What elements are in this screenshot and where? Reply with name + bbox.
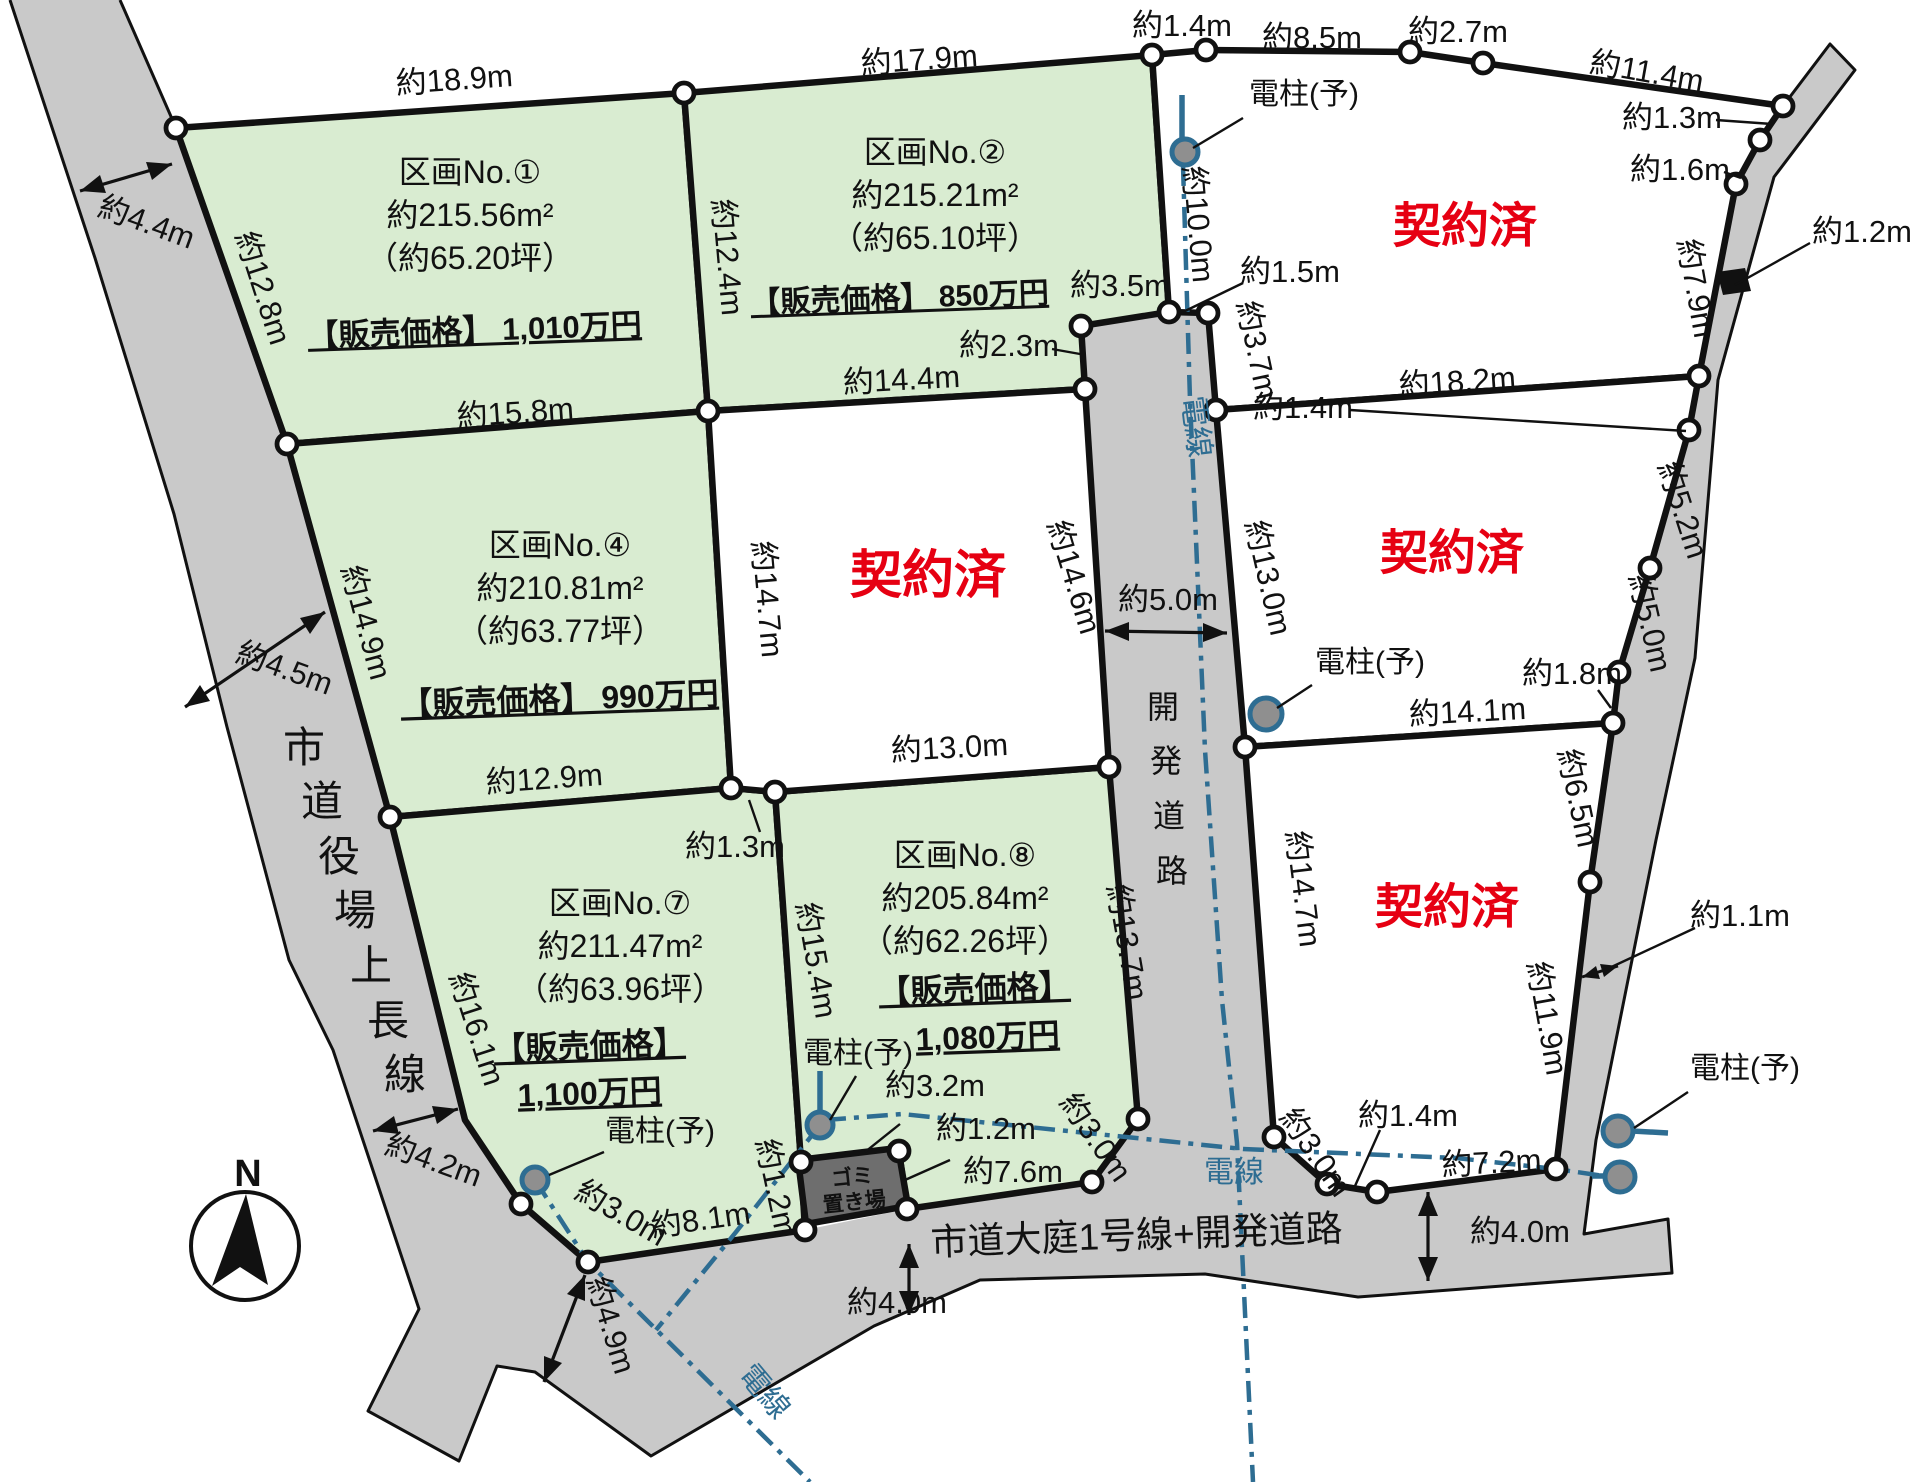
svg-text:約3.2m: 約3.2m: [885, 1068, 985, 1103]
svg-text:約1.2m: 約1.2m: [936, 1111, 1036, 1146]
svg-text:契約済: 契約済: [850, 547, 1007, 605]
svg-text:道: 道: [301, 778, 343, 825]
svg-text:（約62.26坪）: （約62.26坪）: [861, 923, 1069, 959]
svg-text:電柱(予): 電柱(予): [1249, 78, 1359, 111]
svg-text:約4.0m: 約4.0m: [1470, 1214, 1570, 1249]
svg-text:市: 市: [283, 724, 325, 771]
svg-text:開: 開: [1147, 689, 1179, 725]
svg-text:発: 発: [1150, 743, 1182, 779]
svg-text:約14.1m: 約14.1m: [1408, 691, 1527, 732]
svg-text:約1.8m: 約1.8m: [1522, 656, 1622, 691]
svg-text:約2.7m: 約2.7m: [1408, 14, 1508, 49]
svg-text:区画No.④: 区画No.④: [489, 527, 632, 563]
svg-text:約211.47m²: 約211.47m²: [538, 928, 703, 964]
svg-text:約4.0m: 約4.0m: [847, 1285, 947, 1320]
svg-text:（約63.77坪）: （約63.77坪）: [456, 613, 664, 649]
svg-text:約1.3m: 約1.3m: [1622, 100, 1722, 135]
svg-text:線: 線: [384, 1051, 426, 1098]
svg-text:約1.6m: 約1.6m: [1630, 152, 1730, 187]
svg-text:【販売価格】: 【販売価格】: [878, 968, 1071, 1011]
svg-text:約1.1m: 約1.1m: [1690, 898, 1790, 933]
svg-text:区画No.⑧: 区画No.⑧: [894, 837, 1037, 873]
svg-text:上: 上: [350, 942, 392, 989]
svg-text:電柱(予): 電柱(予): [803, 1037, 913, 1070]
svg-text:路: 路: [1156, 853, 1188, 889]
svg-text:約2.3m: 約2.3m: [959, 328, 1059, 363]
svg-text:区画No.②: 区画No.②: [864, 134, 1007, 170]
svg-text:区画No.①: 区画No.①: [399, 154, 542, 190]
svg-text:約215.56m²: 約215.56m²: [386, 197, 554, 233]
svg-text:電柱(予): 電柱(予): [605, 1115, 715, 1148]
svg-text:約1.4m: 約1.4m: [1132, 8, 1232, 43]
svg-text:N: N: [234, 1153, 261, 1195]
svg-text:ゴミ: ゴミ: [830, 1163, 874, 1191]
svg-text:（約65.10坪）: （約65.10坪）: [831, 220, 1039, 256]
svg-text:約7.2m: 約7.2m: [1441, 1142, 1543, 1182]
svg-text:約1.4m: 約1.4m: [1253, 390, 1353, 425]
svg-text:約1.5m: 約1.5m: [1240, 254, 1340, 289]
svg-text:約1.4m: 約1.4m: [1358, 1098, 1458, 1133]
svg-text:約205.84m²: 約205.84m²: [881, 880, 1049, 916]
svg-text:約7.6m: 約7.6m: [963, 1154, 1063, 1189]
svg-text:【販売価格】: 【販売価格】: [493, 1025, 686, 1068]
svg-text:電柱(予): 電柱(予): [1315, 646, 1425, 679]
svg-text:長: 長: [367, 997, 409, 1044]
svg-text:約215.21m²: 約215.21m²: [851, 177, 1019, 213]
svg-text:約14.4m: 約14.4m: [842, 359, 961, 400]
svg-text:契約済: 契約済: [1393, 200, 1538, 253]
svg-text:電柱(予): 電柱(予): [1690, 1052, 1800, 1085]
svg-text:（約63.96坪）: （約63.96坪）: [516, 971, 724, 1007]
svg-text:役: 役: [318, 833, 360, 880]
svg-text:電線: 電線: [1175, 394, 1217, 460]
svg-text:道: 道: [1153, 798, 1185, 834]
svg-text:約1.3m: 約1.3m: [685, 829, 785, 864]
svg-text:電線: 電線: [1204, 1156, 1264, 1189]
svg-text:契約済: 契約済: [1375, 881, 1520, 934]
svg-text:約13.0m: 約13.0m: [890, 727, 1009, 768]
svg-text:場: 場: [334, 887, 376, 934]
svg-text:約3.5m: 約3.5m: [1070, 268, 1170, 303]
svg-text:約5.0m: 約5.0m: [1118, 582, 1218, 617]
svg-text:1,080万円: 1,080万円: [915, 1017, 1060, 1058]
svg-text:区画No.⑦: 区画No.⑦: [549, 885, 692, 921]
svg-text:1,100万円: 1,100万円: [517, 1073, 662, 1114]
svg-text:約8.5m: 約8.5m: [1262, 20, 1362, 55]
svg-text:（約65.20坪）: （約65.20坪）: [366, 240, 574, 276]
svg-text:約1.2m: 約1.2m: [1812, 214, 1912, 249]
svg-text:契約済: 契約済: [1380, 527, 1525, 580]
svg-text:約210.81m²: 約210.81m²: [476, 570, 644, 606]
